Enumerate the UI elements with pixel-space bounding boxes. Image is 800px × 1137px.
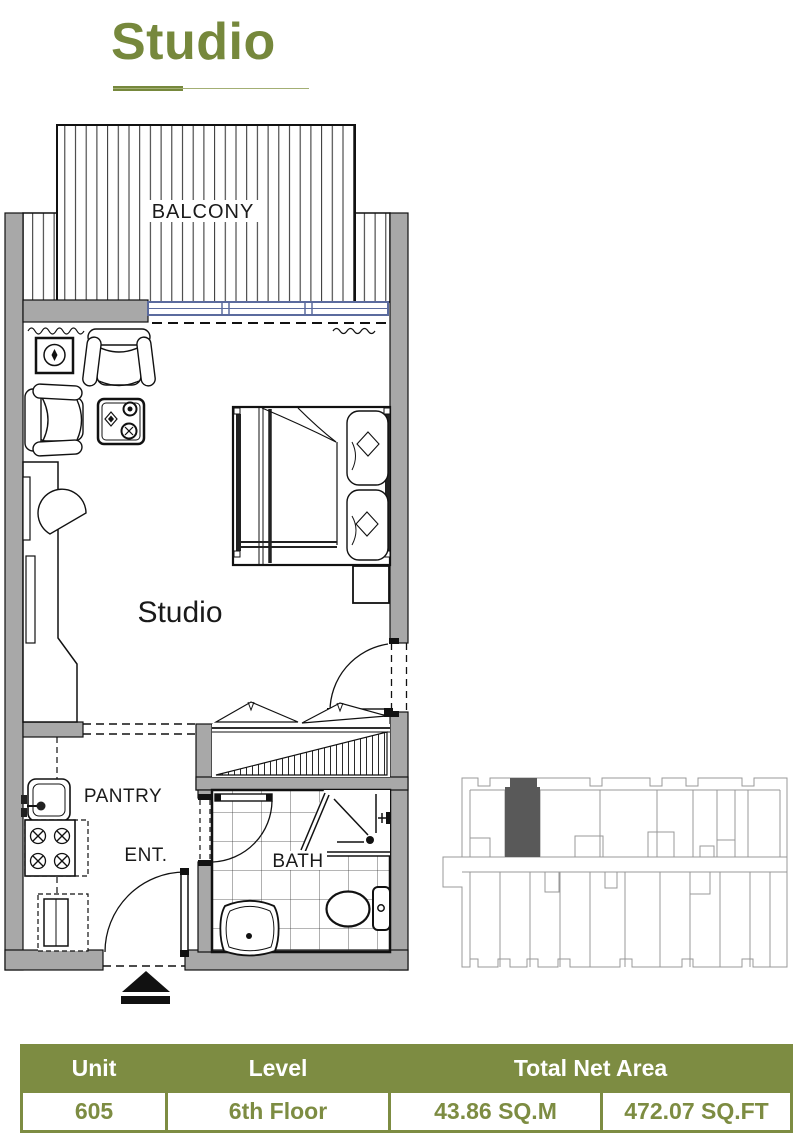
wardrobe: [212, 702, 390, 777]
table-data-row: 605 6th Floor 43.86 SQ.M 472.07 SQ.FT: [22, 1092, 792, 1132]
entrance-label: ENT.: [124, 845, 167, 866]
coffee-table: [98, 399, 144, 444]
unit-level: 6th Floor: [167, 1092, 390, 1132]
balcony-window: [148, 302, 388, 315]
unit-number: 605: [22, 1092, 167, 1132]
bath-label: BATH: [272, 851, 323, 872]
pantry-label: PANTRY: [84, 786, 162, 807]
area-sqm: 43.86 SQ.M: [390, 1092, 602, 1132]
entrance-door: [103, 868, 189, 966]
floor-plan: BALCONY: [0, 100, 430, 1010]
toilet: [327, 887, 391, 930]
bed: [233, 407, 390, 565]
page-title: Studio: [111, 12, 276, 72]
side-table: [36, 338, 73, 373]
unit-location-highlight: [505, 778, 540, 857]
unit-info-table: Unit Level Total Net Area 605 6th Floor …: [20, 1044, 793, 1133]
armchair-left: [25, 384, 83, 456]
pantry-kitchen: [21, 737, 88, 951]
curtain-left: [28, 328, 84, 334]
header-level: Level: [167, 1046, 390, 1092]
header-total-net-area: Total Net Area: [390, 1046, 792, 1092]
nightstand: [353, 566, 389, 603]
pillow-bottom: [347, 490, 388, 560]
balcony: BALCONY: [23, 125, 390, 302]
building-locator: [440, 755, 795, 970]
studio-room-label: Studio: [137, 596, 222, 629]
title-underline-extension: [113, 88, 309, 89]
wash-basin: [220, 901, 278, 956]
kitchen-sink: [21, 779, 70, 821]
cabinet: [38, 894, 88, 951]
header-unit: Unit: [22, 1046, 167, 1092]
curtain-right: [333, 329, 375, 334]
table-header-row: Unit Level Total Net Area: [22, 1046, 792, 1092]
balcony-label: BALCONY: [152, 201, 255, 223]
hanger-symbol-2: [302, 703, 387, 723]
armchair-top: [82, 329, 156, 387]
area-sqft: 472.07 SQ.FT: [602, 1092, 792, 1132]
stove: [25, 820, 88, 876]
bathroom: BATH: [198, 790, 391, 956]
pillow-top: [347, 411, 388, 485]
desk-chair: [38, 489, 86, 534]
unit-dividers-bottom: [470, 872, 770, 967]
hanger-symbol-1: [216, 702, 298, 722]
entry-arrow-icon: [121, 971, 170, 1004]
